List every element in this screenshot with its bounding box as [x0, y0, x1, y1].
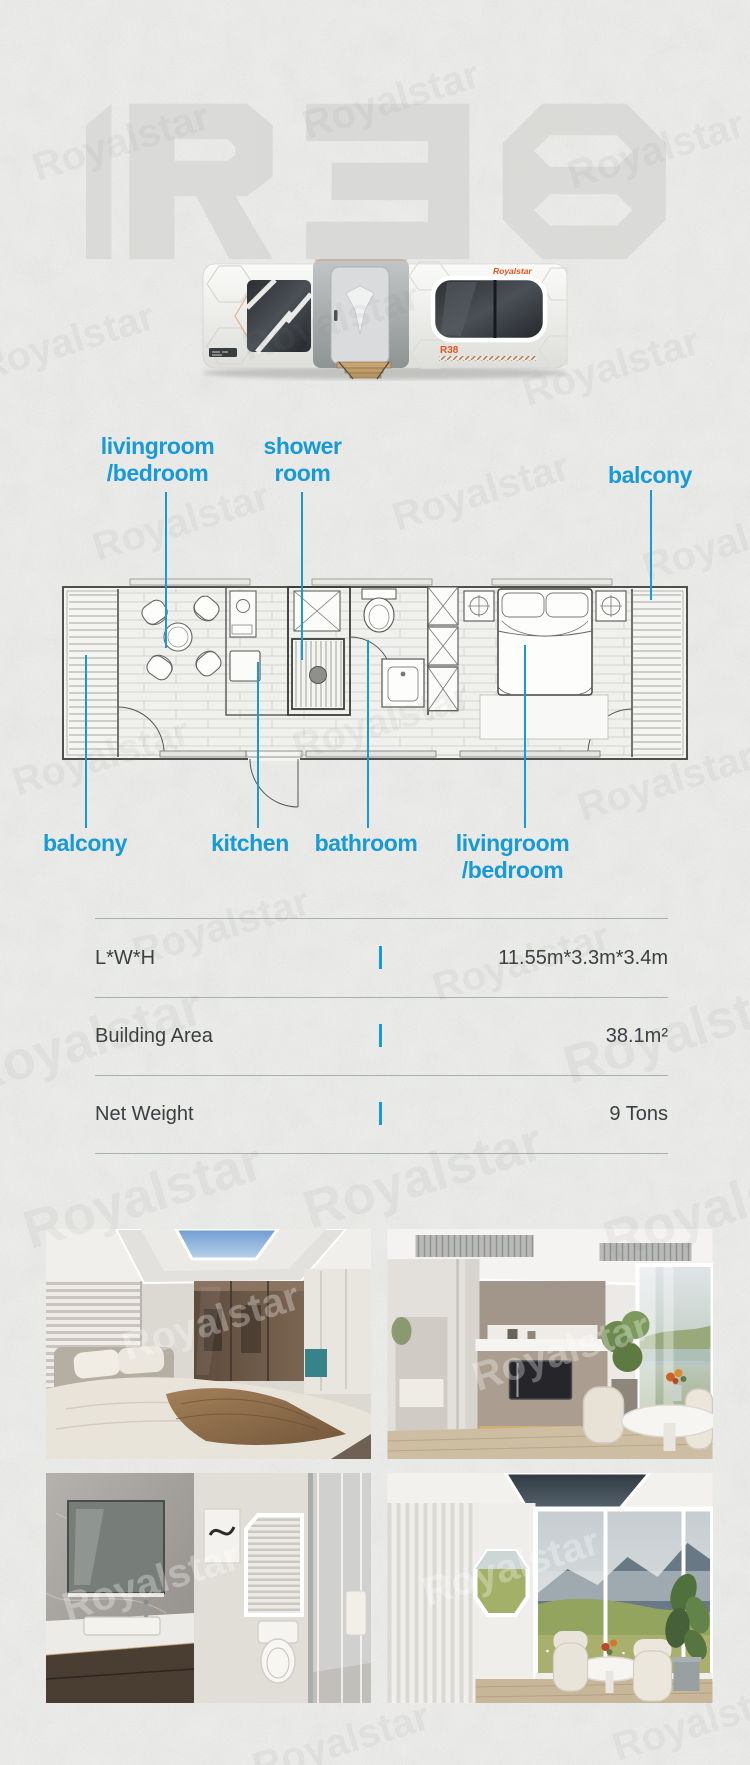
- door-handle: [334, 310, 338, 321]
- spec-value: 11.55m*3.3m*3.4m: [498, 947, 668, 970]
- label-livingroom-bedroom-top: livingroom /bedroom: [85, 433, 230, 487]
- leader-shower-room: [301, 492, 303, 660]
- house-model-badge: R38: [440, 345, 459, 356]
- spec-row-dimensions: L*W*H 11.55m*3.3m*3.4m: [95, 943, 668, 973]
- label-shower-room: shower room: [240, 433, 365, 487]
- hazard-stripe: [439, 356, 537, 361]
- left-window: [247, 280, 311, 352]
- house-brand-logo: Royalstar: [493, 266, 532, 276]
- spec-tick: [379, 1102, 382, 1125]
- page: Royalstar R38: [0, 0, 750, 1765]
- label-balcony-left: balcony: [25, 830, 145, 857]
- label-line: kitchen: [190, 830, 310, 857]
- spec-row-net-weight: Net Weight 9 Tons: [95, 1099, 668, 1129]
- label-line: balcony: [25, 830, 145, 857]
- floor-plan: [60, 575, 690, 810]
- logo-bar: [86, 104, 112, 259]
- label-livingroom-bedroom-bottom: livingroom /bedroom: [440, 830, 585, 884]
- leader-balcony-left: [85, 655, 87, 828]
- label-line: room: [240, 460, 365, 487]
- spec-tick: [379, 1024, 382, 1047]
- house-render: Royalstar R38: [195, 250, 575, 382]
- label-kitchen: kitchen: [190, 830, 310, 857]
- label-line: livingroom: [440, 830, 585, 857]
- leader-bathroom: [367, 640, 369, 828]
- wardrobe-plan: [428, 587, 458, 711]
- spec-row-building-area: Building Area 38.1m²: [95, 1021, 668, 1051]
- photo-kitchen-dining: [387, 1229, 713, 1459]
- spec-label: Building Area: [95, 1025, 213, 1048]
- ghost-model-logo: [78, 92, 668, 264]
- label-line: /bedroom: [85, 460, 230, 487]
- photo-bathroom: [46, 1473, 371, 1703]
- leader-kitchen: [257, 662, 259, 828]
- photo-panoramic-dining: [387, 1473, 713, 1703]
- spec-label: Net Weight: [95, 1103, 194, 1126]
- logo-letter-3: [306, 104, 469, 259]
- leader-livingroom-top: [165, 492, 167, 648]
- label-balcony-right: balcony: [590, 462, 710, 489]
- leader-livingroom-bottom: [524, 645, 526, 828]
- spec-divider: [95, 918, 668, 919]
- label-bathroom: bathroom: [306, 830, 426, 857]
- spec-divider: [95, 1075, 668, 1076]
- spec-label: L*W*H: [95, 947, 155, 970]
- spec-divider: [95, 997, 668, 998]
- label-line: livingroom: [85, 433, 230, 460]
- spec-value: 9 Tons: [609, 1103, 668, 1126]
- leader-balcony-right: [650, 490, 652, 600]
- logo-letter-r: [129, 104, 272, 259]
- label-line: /bedroom: [440, 857, 585, 884]
- label-line: shower: [240, 433, 365, 460]
- photo-bedroom: [46, 1229, 371, 1459]
- spec-tick: [379, 946, 382, 969]
- spec-value: 38.1m²: [606, 1025, 668, 1048]
- label-line: bathroom: [306, 830, 426, 857]
- spec-divider: [95, 1153, 668, 1154]
- logo-letter-8: [503, 104, 666, 259]
- roof-segments: [130, 579, 612, 585]
- label-line: balcony: [590, 462, 710, 489]
